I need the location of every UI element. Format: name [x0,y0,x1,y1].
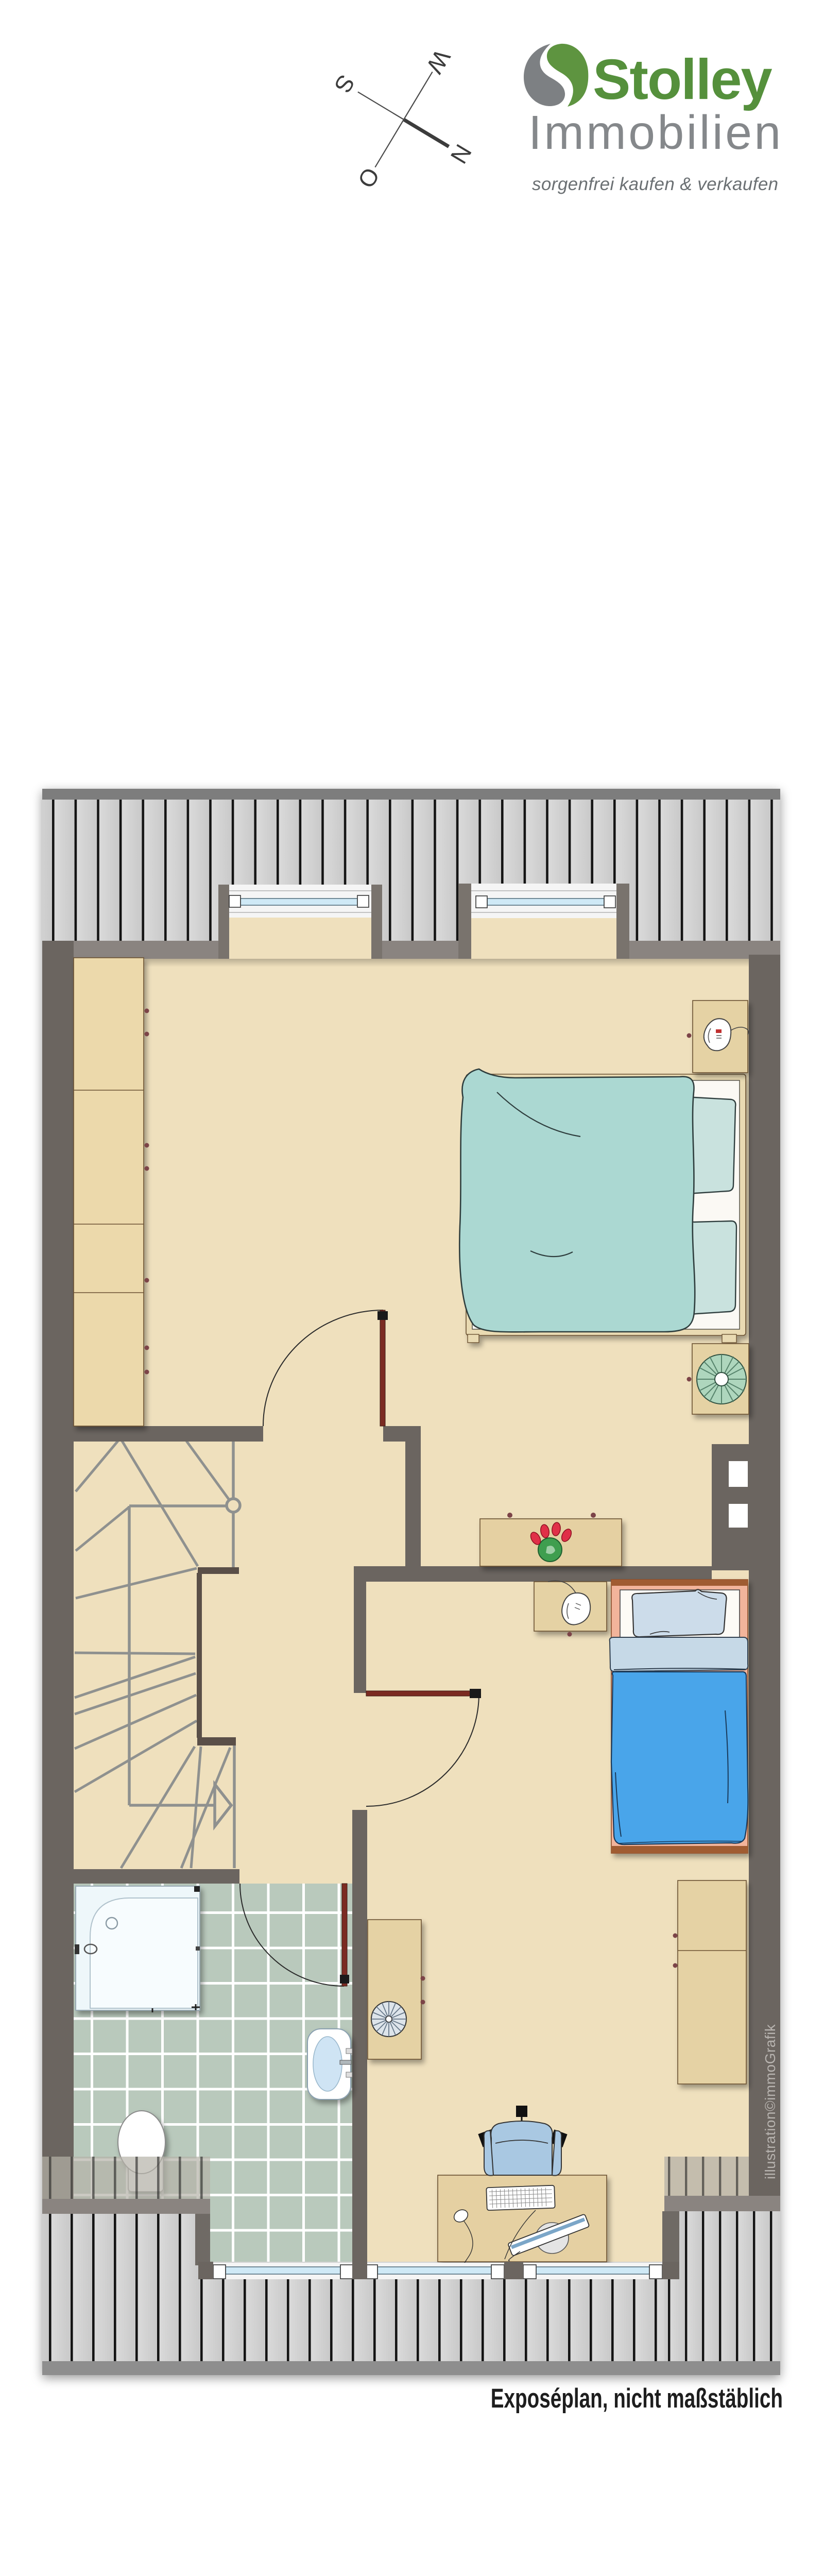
svg-text:O: O [353,163,385,192]
svg-text:sorgenfrei kaufen & verkaufen: sorgenfrei kaufen & verkaufen [532,174,779,194]
svg-text:illustration©immoGrafik: illustration©immoGrafik [762,2024,778,2179]
svg-text:Immobilien: Immobilien [528,106,783,159]
svg-text:W: W [421,45,456,78]
svg-text:Stolley: Stolley [593,48,772,111]
svg-text:S: S [329,70,360,97]
svg-text:N: N [445,140,477,168]
svg-text:Exposéplan, nicht maßstäblich: Exposéplan, nicht maßstäblich [491,2383,783,2413]
